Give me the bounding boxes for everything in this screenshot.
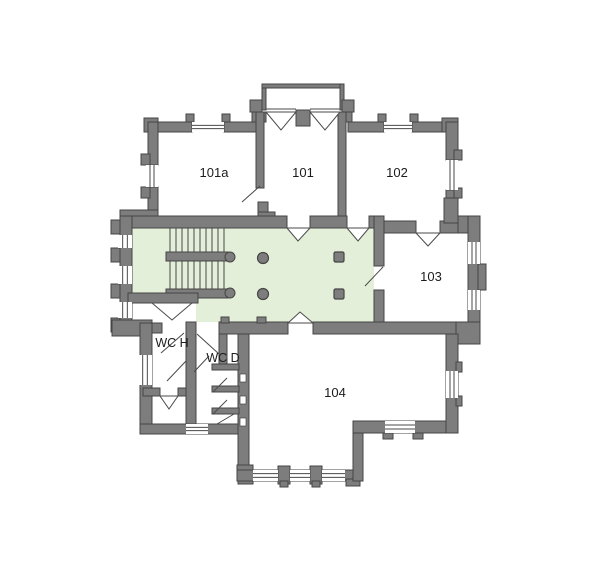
tab-104-a [383,433,393,439]
pier-103-north [444,198,458,223]
pilaster-west-1 [111,220,120,234]
room101a-top-wall-right [224,122,256,132]
pilaster-west-a [141,154,150,165]
room-label-102: 102 [386,165,408,180]
pier-102-window-right [410,114,418,122]
vestibule-north-wall [128,293,198,303]
pier-101a-window-right [222,114,230,122]
wall-101a-101 [256,112,264,188]
window-104-east [446,371,458,398]
window-bay-1 [253,470,278,481]
window-corridor-west-3 [118,302,132,318]
stair-rail-0 [166,252,228,261]
pier-101a-window-left [186,114,194,122]
corridor-south-wall-east [313,322,456,334]
column-round-2 [258,289,269,300]
window-102-east [446,160,458,190]
column-square-2 [334,289,344,299]
tab-corridor-b [257,317,266,323]
window-101a-west [146,165,158,187]
block-101-sw-a [258,202,268,212]
room-label-101: 101 [292,165,314,180]
room-label-wc-h: WC H [155,336,188,350]
porch-wall-top [262,84,344,88]
window-104-south [385,421,415,433]
room-label-101a: 101a [200,165,230,180]
window-103-east-1 [468,242,480,264]
pilaster-104-a [456,362,462,372]
window-wc-west [138,355,152,385]
window-103-east-2 [468,290,480,310]
column-round-1 [258,253,269,264]
room-label-wc-d: WC D [206,351,239,365]
pilaster-west-3 [111,284,120,298]
corridor-north-wall-mid [310,216,347,228]
wall-corridor-103-upper [374,216,384,266]
bay-foot-1 [280,481,288,487]
pilaster-west-b [141,187,150,198]
pilaster-east-a [454,150,462,160]
corridor-north-wall-west [120,216,287,228]
window-bay-3 [322,470,345,481]
stair-rail-cap-0 [225,252,235,262]
corridor-south-wall-west [219,322,288,334]
corner-se-103-block [456,322,480,344]
column-square-1 [334,252,344,262]
window-corridor-west-1 [118,235,132,248]
window-102-north [384,122,412,132]
wall-101-102 [338,112,346,216]
room103-north-wall-west [384,221,416,233]
stall-recess-1 [240,374,246,382]
wch-partition-east [178,388,186,396]
window-101a-north [192,122,224,132]
pilaster-east-103 [478,264,486,290]
porch-flange-right [342,100,354,112]
porch-center-pier [296,110,310,126]
pier-102-window-left [378,114,386,122]
room102-top-wall-right [412,122,446,132]
window-wc-south [186,424,208,434]
stall-recess-3 [240,418,246,426]
stair-rail-cap-1 [225,288,235,298]
pilaster-west-2 [111,248,120,262]
bay-foot-2 [312,481,320,487]
window-corridor-west-2 [118,266,132,284]
room-label-104: 104 [324,385,346,400]
window-bay-2 [290,470,310,481]
room102-top-wall-left [348,122,384,132]
porch-flange-left [250,100,262,112]
floor-plan: 101a101102103104WC HWC D [0,0,600,570]
tab-104-b [413,433,423,439]
room-label-103: 103 [420,269,442,284]
stall-recess-2 [240,396,246,404]
tab-corridor-a [221,317,229,323]
wch-partition-west [143,388,160,396]
